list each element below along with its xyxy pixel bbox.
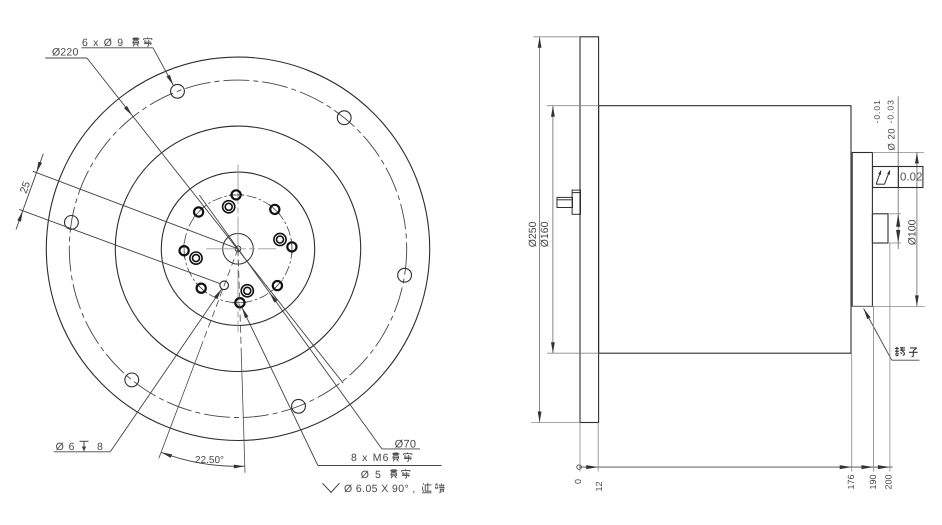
svg-text:Ø 6: Ø 6 — [56, 441, 76, 453]
svg-text:190: 190 — [868, 474, 878, 489]
svg-text:-0.03: -0.03 — [885, 99, 895, 123]
svg-text:Ø 20: Ø 20 — [887, 128, 898, 151]
svg-text:Ø100: Ø100 — [906, 219, 918, 245]
svg-text:0: 0 — [573, 479, 583, 484]
svg-text:12: 12 — [594, 481, 604, 491]
svg-text:Ø250: Ø250 — [527, 221, 539, 247]
svg-text:8 x M6: 8 x M6 — [351, 452, 390, 464]
svg-text:Ø220: Ø220 — [52, 47, 79, 59]
svg-text:200: 200 — [884, 474, 894, 489]
svg-text:Ø 6.05 X 90° ,: Ø 6.05 X 90° , — [344, 483, 416, 495]
svg-text:22.50°: 22.50° — [195, 455, 224, 466]
svg-text:Ø160: Ø160 — [539, 221, 551, 247]
svg-text:0.02: 0.02 — [900, 172, 922, 184]
svg-text:-0.01: -0.01 — [872, 99, 882, 123]
svg-text:6 x Ø 9: 6 x Ø 9 — [82, 37, 124, 49]
svg-text:176: 176 — [846, 474, 856, 489]
svg-text:Ø 5: Ø 5 — [361, 469, 383, 481]
svg-text:8: 8 — [97, 441, 103, 453]
svg-text:25: 25 — [18, 180, 33, 195]
